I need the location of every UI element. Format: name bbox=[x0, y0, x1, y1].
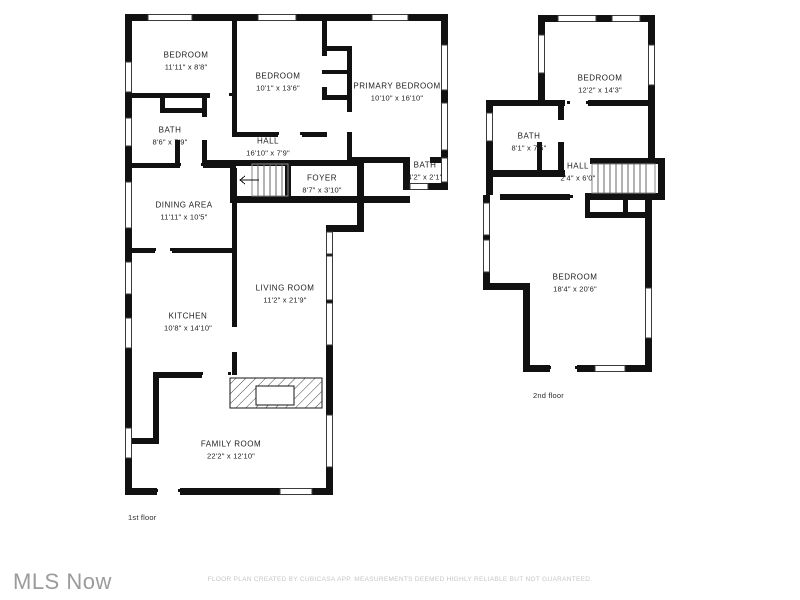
room-label-first-primary-bedroom: PRIMARY BEDROOM 10'10" x 16'10" bbox=[353, 82, 440, 102]
room-name: BATH bbox=[408, 161, 443, 169]
room-name: BEDROOM bbox=[578, 74, 623, 82]
room-dims: 22'2" x 12'10" bbox=[201, 452, 261, 460]
room-label-first-dining-area: DINING AREA 11'11" x 10'5" bbox=[155, 201, 212, 221]
room-name: FAMILY ROOM bbox=[201, 440, 261, 448]
fireplace-hatch bbox=[230, 378, 322, 408]
room-dims: 8'6" x 7'9" bbox=[153, 138, 188, 146]
room-name: HALL bbox=[246, 137, 290, 145]
room-label-first-living-room: LIVING ROOM 11'2" x 21'9" bbox=[256, 284, 315, 304]
room-name: HALL bbox=[561, 162, 596, 170]
second-floor-caption: 2nd floor bbox=[533, 391, 564, 400]
room-name: BATH bbox=[153, 126, 188, 134]
room-name: DINING AREA bbox=[155, 201, 212, 209]
room-name: BATH bbox=[512, 132, 547, 140]
room-label-first-hall: HALL 16'10" x 7'9" bbox=[246, 137, 290, 157]
room-label-second-bedroom-1: BEDROOM 12'2" x 14'3" bbox=[578, 74, 623, 94]
room-dims: 11'2" x 21'9" bbox=[256, 296, 315, 304]
room-label-first-bedroom-2: BEDROOM 10'1" x 13'6" bbox=[256, 72, 301, 92]
second-floor-staircase bbox=[592, 164, 655, 193]
room-dims: 10'10" x 16'10" bbox=[353, 94, 440, 102]
room-dims: 16'10" x 7'9" bbox=[246, 149, 290, 157]
room-label-second-bath: BATH 8'1" x 7'5" bbox=[512, 132, 547, 152]
room-dims: 8'1" x 7'5" bbox=[512, 144, 547, 152]
room-label-first-bedroom-1: BEDROOM 11'11" x 8'8" bbox=[164, 51, 209, 71]
footer-disclaimer: FLOOR PLAN CREATED BY CUBICASA APP. MEAS… bbox=[208, 576, 593, 583]
room-name: FOYER bbox=[302, 174, 341, 182]
room-dims: 10'1" x 13'6" bbox=[256, 84, 301, 92]
room-dims: 12'2" x 14'3" bbox=[578, 86, 623, 94]
room-label-second-bedroom-2: BEDROOM 18'4" x 20'6" bbox=[553, 273, 598, 293]
room-label-second-hall: HALL 2'4" x 6'0" bbox=[561, 162, 596, 182]
room-label-first-bath: BATH 8'6" x 7'9" bbox=[153, 126, 188, 146]
room-name: PRIMARY BEDROOM bbox=[353, 82, 440, 90]
room-dims: 11'11" x 8'8" bbox=[164, 63, 209, 71]
room-dims: 2'4" x 6'0" bbox=[561, 174, 596, 182]
room-label-first-family-room: FAMILY ROOM 22'2" x 12'10" bbox=[201, 440, 261, 460]
room-label-first-bath-2: BATH 4'2" x 2'1" bbox=[408, 161, 443, 181]
room-name: BEDROOM bbox=[256, 72, 301, 80]
first-floor-staircase bbox=[240, 164, 288, 196]
floor-plan-page: { "footer": { "logo": "MLS Now", "discla… bbox=[0, 0, 800, 600]
room-name: BEDROOM bbox=[553, 273, 598, 281]
room-dims: 11'11" x 10'5" bbox=[155, 213, 212, 221]
room-name: LIVING ROOM bbox=[256, 284, 315, 292]
mls-now-logo: MLS Now bbox=[13, 569, 112, 595]
room-dims: 18'4" x 20'6" bbox=[553, 285, 598, 293]
room-dims: 10'8" x 14'10" bbox=[164, 324, 212, 332]
room-label-first-kitchen: KITCHEN 10'8" x 14'10" bbox=[164, 312, 212, 332]
first-floor-caption: 1st floor bbox=[128, 513, 156, 522]
room-name: KITCHEN bbox=[164, 312, 212, 320]
room-name: BEDROOM bbox=[164, 51, 209, 59]
room-label-first-foyer: FOYER 8'7" x 3'10" bbox=[302, 174, 341, 194]
room-dims: 8'7" x 3'10" bbox=[302, 186, 341, 194]
room-dims: 4'2" x 2'1" bbox=[408, 173, 443, 181]
